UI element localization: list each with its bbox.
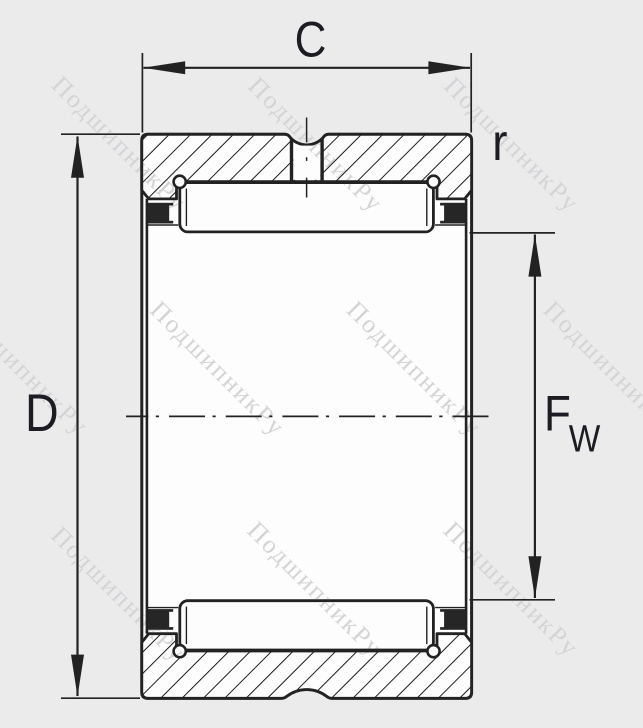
svg-text:F: F xyxy=(544,385,571,441)
svg-text:W: W xyxy=(569,418,601,460)
svg-text:C: C xyxy=(295,11,327,67)
